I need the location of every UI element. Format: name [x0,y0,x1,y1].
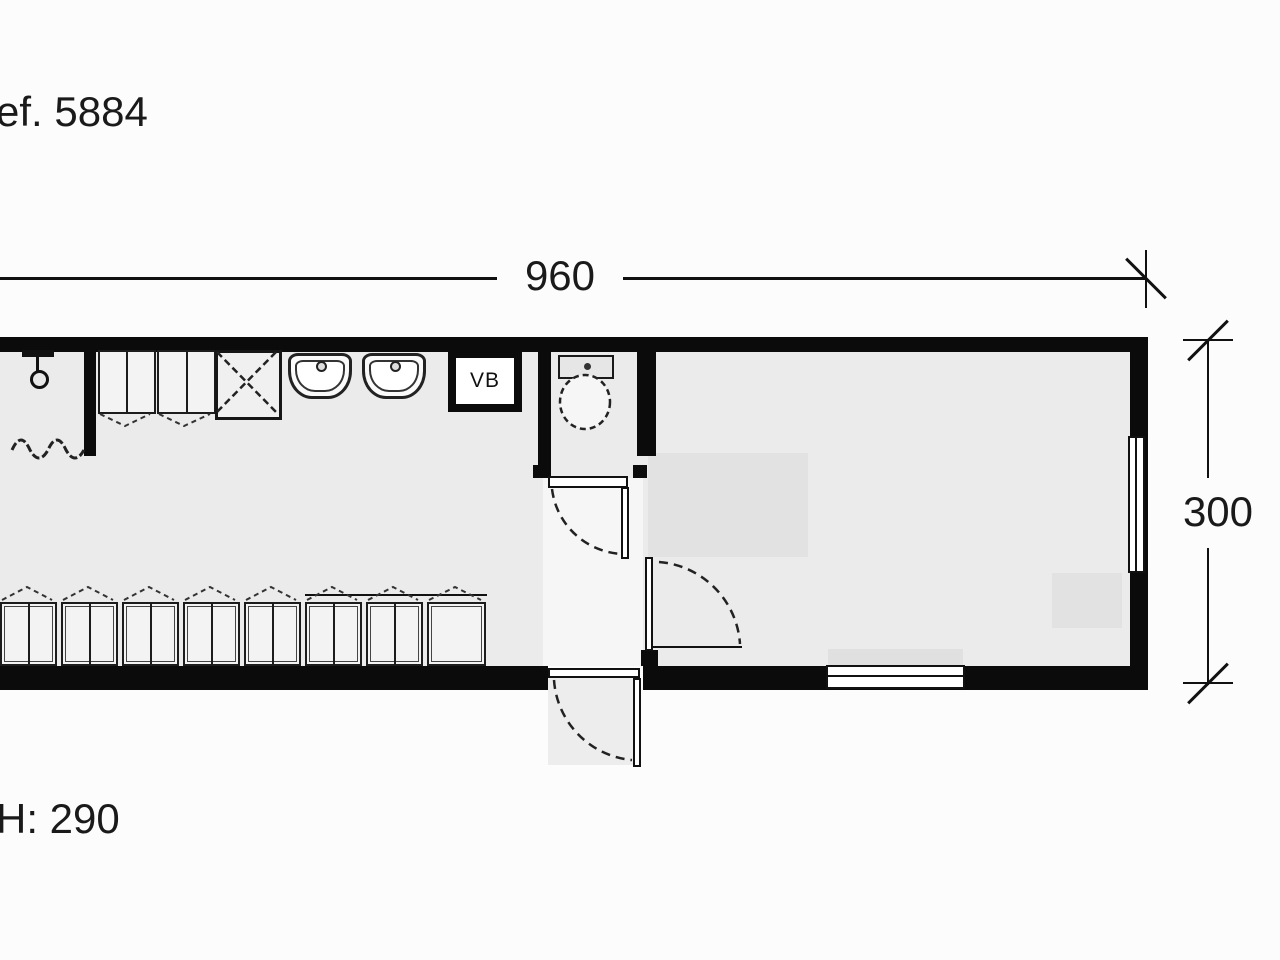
toilet-room-left-wall [538,352,551,478]
locker-icon [0,602,57,666]
locker-icon [305,602,362,666]
width-dimension-value: 960 [495,252,625,300]
exterior-door-leaf-open [633,678,641,767]
locker-divider [394,604,396,664]
locker-icon [183,602,240,666]
toilet-room-wall-stub-right [633,465,647,478]
locker-divider [186,352,188,412]
width-dimension-line-right [623,277,1146,280]
locker-icon [122,602,179,666]
locker-icon [427,602,486,666]
sink-tap [390,361,401,372]
locker-icon [366,602,423,666]
toilet-flush-button [584,363,591,370]
toilet-door-leaf-open [621,487,629,559]
main-room-door-leaf [645,557,653,651]
ceiling-height-label: H: 290 [0,795,120,843]
locker-icon [61,602,118,666]
furniture-shadow-block [1052,573,1122,628]
depth-dimension-value: 300 [1172,488,1264,536]
exterior-door-swing-area [548,676,640,765]
main-room-door-threshold [653,646,742,648]
furniture-shadow-block [828,649,963,666]
water-heater-label: VB [470,369,500,393]
bench-line [305,594,487,596]
width-dimension-line-left [0,277,497,280]
toilet-cistern [558,355,614,379]
locker-divider [150,604,152,664]
locker-icon [98,350,156,414]
exterior-door-leaf-closed [548,668,640,678]
partition-wall-stub-bottom [641,650,658,666]
locker-divider [126,352,128,412]
water-heater-box: VB [448,350,522,412]
locker-icon [244,602,301,666]
toilet-door-leaf-closed [548,476,628,488]
locker-frame [431,606,482,662]
floor-plan-canvas: ef. 5884 H: 290 960 300 [0,0,1280,960]
shower-head [30,370,49,389]
locker-icon [157,350,216,414]
window-mullion-line [1135,438,1137,571]
locker-divider [28,604,30,664]
sink-icon [362,353,426,399]
window-icon [1128,436,1145,573]
window-mullion-line [828,675,963,677]
shower-icon [22,350,54,357]
window-icon [826,665,965,689]
sink-icon [288,353,352,399]
locker-divider [333,604,335,664]
depth-dimension-line-bottom [1207,548,1209,685]
main-partition-wall [637,352,656,456]
shower-partition-wall [84,352,96,456]
furniture-shadow-block [648,453,808,557]
crossed-cabinet [215,350,282,420]
locker-divider [89,604,91,664]
sink-tap [316,361,327,372]
locker-divider [272,604,274,664]
reference-label: ef. 5884 [0,88,148,136]
depth-dimension-line-top [1207,340,1209,478]
locker-divider [211,604,213,664]
